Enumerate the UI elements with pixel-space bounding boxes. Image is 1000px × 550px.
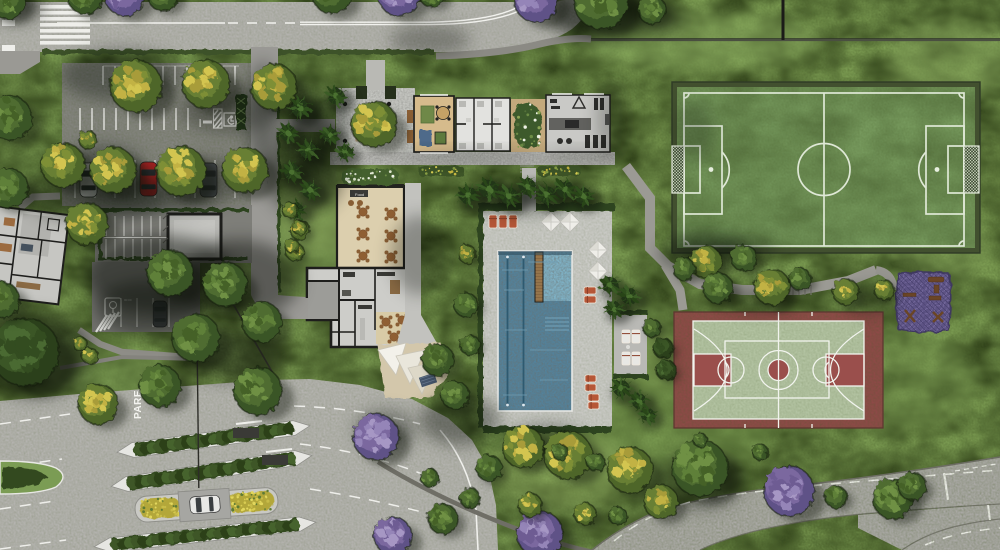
svg-text:Food: Food bbox=[355, 192, 364, 197]
